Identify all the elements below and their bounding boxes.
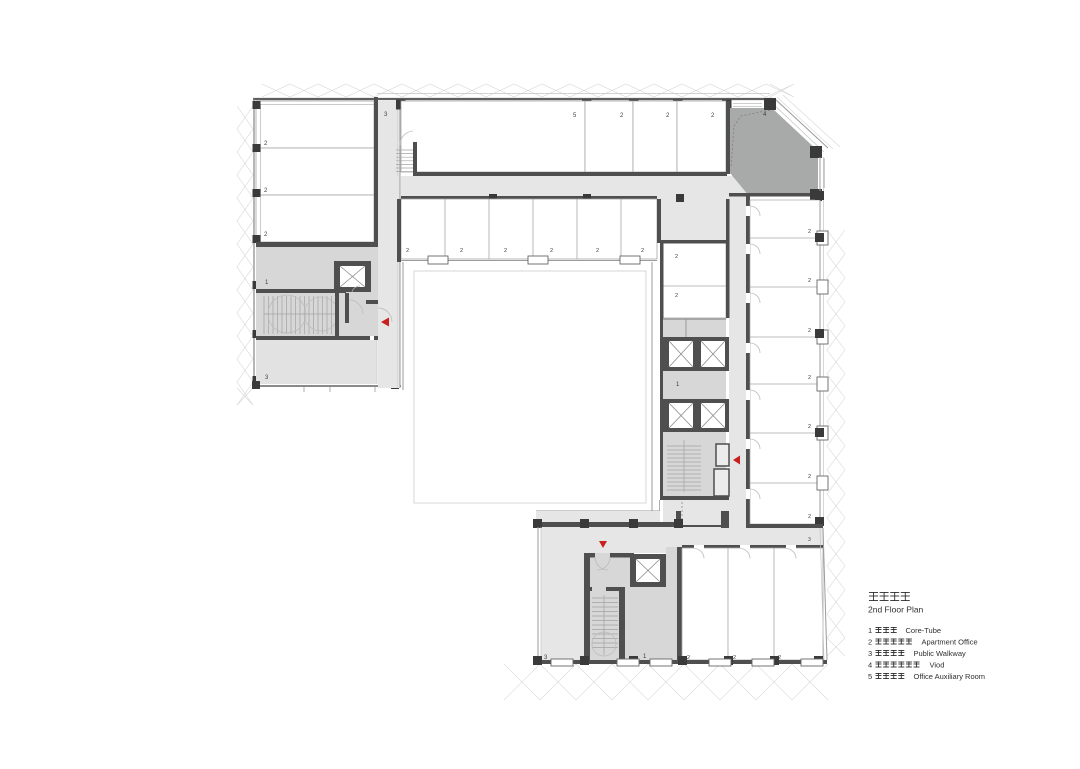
svg-text:2: 2 bbox=[460, 248, 463, 254]
svg-text:2nd Floor Plan: 2nd Floor Plan bbox=[868, 605, 924, 615]
svg-text:Viod: Viod bbox=[930, 661, 945, 670]
svg-text:Public Walkway: Public Walkway bbox=[914, 649, 966, 658]
svg-text:Office Auxiliary Room: Office Auxiliary Room bbox=[914, 672, 986, 681]
svg-text:2: 2 bbox=[808, 328, 811, 334]
svg-text:2: 2 bbox=[641, 248, 644, 254]
svg-text:2: 2 bbox=[550, 248, 553, 254]
svg-text:2: 2 bbox=[596, 248, 599, 254]
svg-text:Core-Tube: Core-Tube bbox=[906, 626, 942, 635]
svg-text:5: 5 bbox=[868, 672, 872, 681]
svg-text:3: 3 bbox=[808, 537, 811, 543]
svg-text:4: 4 bbox=[868, 661, 872, 670]
svg-text:2: 2 bbox=[675, 293, 678, 299]
svg-text:2: 2 bbox=[808, 424, 811, 430]
svg-text:2: 2 bbox=[675, 254, 678, 260]
svg-text:2: 2 bbox=[808, 278, 811, 284]
svg-text:2: 2 bbox=[808, 474, 811, 480]
svg-text:2: 2 bbox=[808, 229, 811, 235]
svg-text:1: 1 bbox=[868, 626, 872, 635]
svg-text:2: 2 bbox=[868, 638, 872, 647]
svg-text:2: 2 bbox=[406, 248, 409, 254]
svg-text:3: 3 bbox=[868, 649, 872, 658]
svg-text:2: 2 bbox=[808, 375, 811, 381]
svg-text:2: 2 bbox=[808, 514, 811, 520]
svg-text:Apartment Office: Apartment Office bbox=[922, 638, 978, 647]
svg-text:2: 2 bbox=[504, 248, 507, 254]
